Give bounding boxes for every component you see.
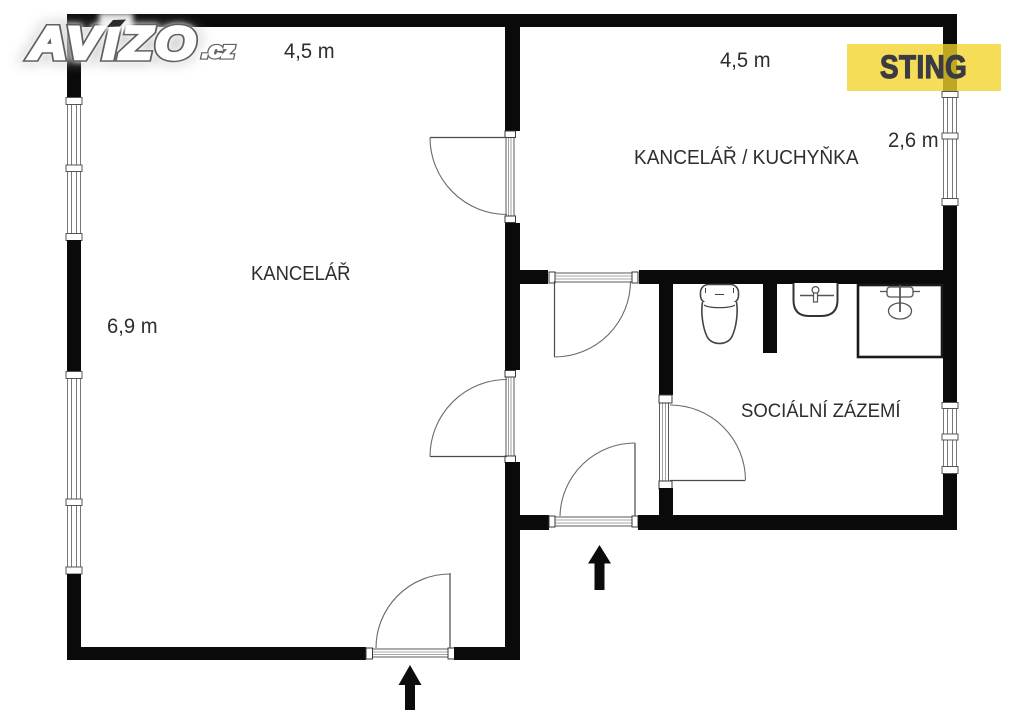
svg-text:.cz: .cz [202, 39, 235, 62]
